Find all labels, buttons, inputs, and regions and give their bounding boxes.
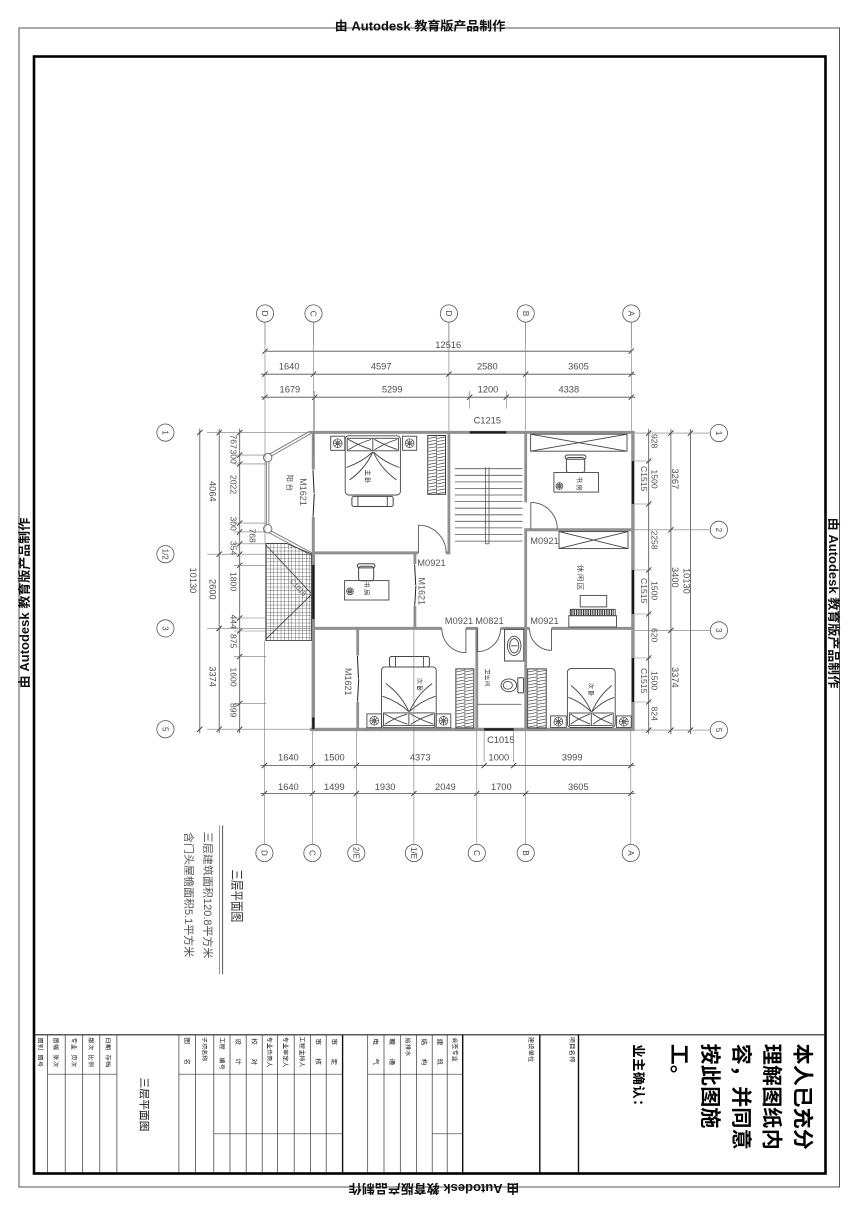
svg-text:2/E: 2/E [351,847,360,859]
svg-text:卫生间: 卫生间 [483,669,490,688]
svg-text:图别: 图别 [37,1038,44,1051]
svg-text:本人已充分: 本人已充分 [791,1044,815,1150]
svg-text:C: C [307,850,316,856]
svg-text:875: 875 [229,634,239,649]
svg-text:D: D [444,311,453,317]
svg-text:三层建筑面积120.8平方米: 三层建筑面积120.8平方米 [201,832,214,959]
svg-text:M1621: M1621 [298,478,308,506]
svg-text:3999: 3999 [562,753,583,763]
svg-text:1: 1 [714,431,723,436]
svg-text:1000: 1000 [489,753,510,763]
svg-text:4373: 4373 [410,753,431,763]
svg-text:电: 电 [372,1039,379,1046]
svg-text:1600: 1600 [229,668,239,687]
svg-text:768: 768 [247,529,257,544]
svg-text:3400: 3400 [670,567,680,588]
svg-text:5: 5 [714,728,723,733]
svg-text:1930: 1930 [375,782,396,792]
svg-text:4338: 4338 [558,384,579,394]
svg-text:气: 气 [372,1059,380,1066]
svg-text:3267: 3267 [670,469,680,490]
svg-text:D: D [259,850,268,856]
svg-text:三层平面图: 三层平面图 [229,870,245,923]
svg-text:1200: 1200 [478,384,499,394]
svg-text:理解图纸内: 理解图纸内 [760,1044,784,1150]
svg-text:构: 构 [420,1059,428,1066]
svg-text:A: A [626,850,635,856]
svg-text:工。: 工。 [667,1044,690,1086]
svg-text:子项名称: 子项名称 [201,1037,209,1063]
svg-text:444: 444 [229,615,239,630]
svg-text:项目名称: 项目名称 [568,1037,576,1063]
svg-text:编号: 编号 [218,1057,226,1071]
svg-text:1500: 1500 [649,470,659,489]
svg-text:按此图施: 按此图施 [698,1044,722,1129]
svg-text:3374: 3374 [208,666,218,687]
svg-text:M0921: M0921 [530,536,558,546]
svg-text:C1515: C1515 [639,578,649,604]
svg-text:A: A [626,311,635,317]
svg-text:审: 审 [314,1039,322,1046]
svg-text:图: 图 [183,1038,190,1045]
svg-text:B: B [521,850,530,855]
svg-text:1800: 1800 [229,572,239,591]
svg-text:1640: 1640 [278,753,299,763]
svg-text:主卧: 主卧 [364,470,372,485]
svg-text:C1015: C1015 [487,735,514,745]
svg-text:M1621: M1621 [417,578,427,606]
svg-text:3605: 3605 [568,361,589,371]
svg-text:C1215: C1215 [474,415,501,425]
svg-text:专业: 专业 [70,1038,78,1051]
svg-text:M0921: M0921 [530,616,558,626]
svg-text:1640: 1640 [278,782,299,792]
svg-text:由 Autodesk 教育版产品制作: 由 Autodesk 教育版产品制作 [335,19,505,34]
svg-text:928: 928 [649,434,659,449]
svg-text:次卧: 次卧 [587,683,595,698]
svg-text:1679: 1679 [280,384,301,394]
svg-text:次卧: 次卧 [416,678,424,693]
svg-text:工程主持人: 工程主持人 [298,1036,306,1068]
svg-text:12516: 12516 [435,340,461,350]
svg-text:专业负责人: 专业负责人 [266,1037,274,1068]
svg-text:建: 建 [435,1039,442,1046]
svg-text:2600: 2600 [208,579,218,600]
svg-text:2: 2 [714,528,723,533]
svg-text:1500: 1500 [649,581,659,600]
svg-text:建设单位: 建设单位 [527,1037,535,1063]
svg-text:2580: 2580 [477,361,498,371]
svg-text:计: 计 [234,1059,241,1066]
svg-text:3374: 3374 [670,667,680,688]
svg-text:比例: 比例 [87,1055,95,1068]
svg-text:M1621: M1621 [343,668,353,696]
svg-text:日期: 日期 [104,1038,111,1051]
svg-text:通: 通 [388,1059,396,1066]
svg-text:M0921: M0921 [417,558,445,568]
svg-text:767: 767 [229,435,239,450]
svg-text:3605: 3605 [568,782,589,792]
svg-text:含门头屋檐面积5.1平方米: 含门头屋檐面积5.1平方米 [182,832,195,957]
svg-text:1: 1 [161,430,170,435]
svg-text:结: 结 [420,1039,427,1046]
svg-text:3: 3 [714,628,723,633]
svg-text:C1515: C1515 [639,668,649,694]
svg-text:5299: 5299 [382,384,403,394]
svg-text:B: B [521,311,530,316]
svg-text:图号: 图号 [37,1055,44,1068]
svg-text:给排水: 给排水 [404,1038,412,1058]
svg-text:业主确认：: 业主确认： [631,1045,646,1113]
svg-text:10130: 10130 [188,568,198,594]
svg-text:由 Autodesk 教育版产品制作: 由 Autodesk 教育版产品制作 [17,518,32,688]
svg-text:工程: 工程 [218,1037,226,1051]
svg-text:4064: 4064 [208,481,218,502]
svg-text:审: 审 [330,1039,338,1046]
svg-text:M0921: M0921 [445,616,473,626]
svg-text:300: 300 [229,450,239,465]
svg-text:5: 5 [161,727,170,732]
svg-text:图幅: 图幅 [52,1038,59,1051]
svg-text:824: 824 [649,707,659,722]
svg-text:校: 校 [250,1039,258,1046]
svg-text:3: 3 [161,626,170,631]
svg-text:由 Autodesk 教育版产品制作: 由 Autodesk 教育版产品制作 [349,1181,519,1196]
svg-text:C: C [472,850,481,856]
svg-text:C1515: C1515 [639,466,649,492]
svg-text:1499: 1499 [324,782,345,792]
svg-text:M0821: M0821 [475,616,503,626]
svg-text:筑: 筑 [435,1059,443,1066]
svg-text:2258: 2258 [649,531,659,550]
svg-text:899: 899 [229,703,239,718]
svg-text:354: 354 [229,541,239,556]
svg-text:10130: 10130 [682,568,692,594]
svg-text:对: 对 [250,1059,257,1066]
svg-text:定: 定 [330,1059,338,1066]
svg-text:专业审定人: 专业审定人 [282,1037,290,1068]
svg-text:休闲区: 休闲区 [575,565,585,591]
svg-text:书房: 书房 [575,477,583,492]
svg-text:书房: 书房 [362,582,370,597]
svg-text:核: 核 [314,1059,322,1066]
svg-text:2049: 2049 [435,782,456,792]
svg-text:会签专业: 会签专业 [451,1037,459,1062]
svg-text:1640: 1640 [279,361,300,371]
svg-text:由 Autodesk 教育版产品制作: 由 Autodesk 教育版产品制作 [826,518,841,688]
svg-text:1/E: 1/E [409,847,418,859]
svg-text:4597: 4597 [371,361,392,371]
svg-text:存档: 存档 [104,1055,111,1068]
svg-text:页次: 页次 [70,1055,78,1069]
svg-text:容，并同意: 容，并同意 [729,1044,753,1150]
svg-text:版次: 版次 [87,1037,95,1052]
svg-text:暖: 暖 [388,1039,396,1046]
svg-text:1500: 1500 [324,753,345,763]
svg-text:C: C [309,311,318,317]
svg-text:1500: 1500 [649,671,659,690]
svg-text:阳台: 阳台 [285,475,294,493]
svg-text:张次: 张次 [52,1055,60,1069]
svg-text:设: 设 [234,1039,242,1046]
svg-text:D: D [260,311,269,317]
svg-text:1/2: 1/2 [161,549,170,561]
svg-text:300: 300 [229,517,239,532]
svg-text:2022: 2022 [229,475,239,494]
svg-text:名: 名 [183,1059,191,1066]
svg-text:1700: 1700 [491,782,512,792]
svg-text:三层平面图: 三层平面图 [137,1078,149,1132]
